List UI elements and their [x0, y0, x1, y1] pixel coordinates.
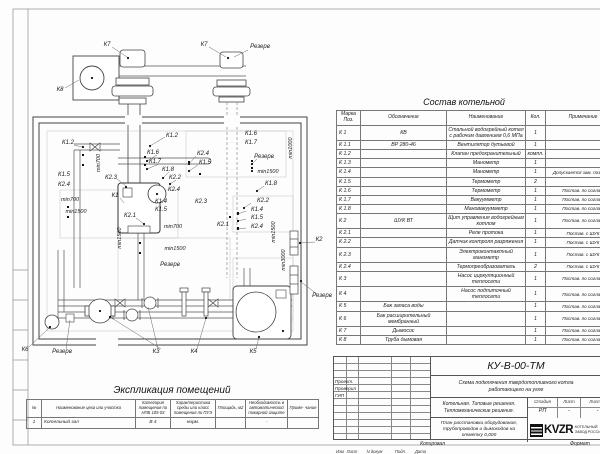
format-label: Формат — [570, 441, 600, 447]
callout-label: min700 — [96, 153, 102, 172]
inline-pumps — [124, 297, 158, 321]
callout-label: Резерв — [254, 154, 274, 160]
table-cell: Манометр — [447, 168, 526, 177]
table-cell: 1 — [526, 335, 546, 344]
callout-label: К1.5 — [251, 215, 264, 221]
table-cell — [361, 247, 447, 262]
table-cell: 1 — [526, 326, 546, 335]
callout-label: К6 — [22, 347, 30, 353]
table-cell — [288, 417, 319, 428]
role-label: Проект. — [335, 379, 375, 384]
table-cell: К 1.7 — [337, 195, 361, 204]
table-cell — [361, 238, 447, 247]
table-cell: К 1.8 — [337, 204, 361, 213]
table-cell: Вакуумметр — [447, 195, 526, 204]
sheet-description: План расстановки оборудования, трубопров… — [431, 418, 528, 442]
callout-label: К1 — [112, 193, 119, 199]
callout-label: К4 — [191, 349, 199, 355]
callout-label: К2.4 — [168, 187, 181, 193]
callout-label: К2.1 — [124, 213, 136, 219]
table-cell: Постав. по соглас. — [546, 335, 600, 344]
table-cell: Постав. с ШУК — [546, 229, 600, 238]
table-cell — [361, 262, 447, 271]
callout-label: К1.8 — [162, 167, 175, 173]
callout-label: Резерв — [312, 293, 332, 299]
table-row: К 2.4Термопреобразователь2Постав. с ШУК — [337, 262, 600, 271]
callout-label: К1.4 — [251, 207, 264, 213]
table-row: К 2.3Электроконтактный манометр1Постав. … — [337, 247, 600, 262]
table-cell: 1 — [526, 186, 546, 195]
callout-label: К2.2 — [169, 175, 182, 181]
callout-label: min700 — [61, 197, 80, 203]
callout-label: К2.3 — [105, 175, 118, 181]
title-block-revision-grid: Изм Лист N докум Подп. Дата Проект. Пров… — [334, 357, 431, 439]
column-header: Марка Поз. — [337, 111, 361, 126]
callout-label: К1.6 — [147, 150, 160, 156]
table-cell: 1 — [526, 287, 546, 302]
column-header: Наименование — [447, 111, 526, 126]
table-cell: К 5 — [337, 302, 361, 311]
table-cell — [361, 159, 447, 168]
table-cell: 1 — [526, 141, 546, 150]
table-cell: К 2 — [337, 214, 361, 229]
callout-label: К2 — [316, 237, 324, 243]
control-panel-k2 — [290, 231, 298, 255]
project-name: Котельная. Типовые решения. Тепломеханич… — [431, 398, 528, 418]
title-block: Изм Лист N докум Подп. Дата Проект. Пров… — [333, 356, 600, 440]
table-row: К 1.3Манометр1 — [337, 159, 600, 168]
table-cell: Щит управления водогрейным котлом — [447, 214, 526, 229]
table-row: К 5Бак запаса воды1Постав. по соглас. — [337, 302, 600, 311]
table-cell: Постав. по соглас. — [546, 186, 600, 195]
callout-label: min1500 — [117, 227, 123, 249]
explication-section: Экспликация помещений № Наименование цех… — [26, 385, 326, 429]
table-cell: К 2.3 — [337, 247, 361, 262]
table-cell — [361, 168, 447, 177]
table-cell: Насос подпиточный теплосети — [447, 287, 526, 302]
callout-label: К2.4 — [58, 182, 71, 188]
spec-header-row: Марка Поз. Обозначение Наименование Кол.… — [337, 111, 600, 126]
callout-label: min1000 — [288, 137, 294, 159]
column-header: Площадь, м2 — [216, 400, 246, 418]
explication-title: Экспликация помещений — [26, 385, 318, 396]
table-cell: 1 — [526, 302, 546, 311]
table-cell: Вентилятор дутьевой — [447, 141, 526, 150]
table-cell: Манометр — [447, 159, 526, 168]
table-cell: К 1.3 — [337, 159, 361, 168]
table-row: К 1.1ВР 280-46Вентилятор дутьевой1 — [337, 141, 600, 150]
table-cell: Постав. по соглас. — [546, 287, 600, 302]
table-cell: Термометр — [447, 186, 526, 195]
callout-label: К5 — [250, 349, 258, 355]
table-cell — [361, 271, 447, 286]
table-row: К 1.7Вакуумметр1Постав. по соглас. — [337, 195, 600, 204]
table-cell: 1 — [526, 229, 546, 238]
table-cell: Постав. по соглас. — [546, 326, 600, 335]
column-header: Необходимость в автоматической пожарной … — [246, 400, 288, 418]
sheets-label: Листов — [581, 399, 600, 404]
table-cell: К 3 — [337, 271, 361, 286]
table-row: К 4Насос подпиточный теплосети1Постав. п… — [337, 287, 600, 302]
table-cell — [546, 177, 600, 186]
table-cell: 1 — [526, 168, 546, 177]
table-row: К 2.1Реле протока1Постав. с ШУК — [337, 229, 600, 238]
table-cell: Датчик контроля разряжения — [447, 238, 526, 247]
table-cell: 1 — [526, 271, 546, 286]
table-cell: К 1 — [337, 125, 361, 140]
callout-label: К1.8 — [265, 181, 278, 187]
kvzr-logo-text: KVZR — [544, 424, 573, 436]
table-cell: Постав. по соглас. — [546, 271, 600, 286]
table-cell: Стальной водогрейный котел с рабочим дав… — [447, 125, 526, 140]
callout-label: Резерв — [250, 44, 270, 50]
table-cell: К 2.2 — [337, 238, 361, 247]
table-cell: КВ — [361, 125, 447, 140]
table-cell: 2 — [526, 262, 546, 271]
callout-label: К1.4 — [155, 199, 168, 205]
column-header: Кол. — [526, 111, 546, 126]
table-cell — [546, 125, 600, 140]
table-cell — [546, 159, 600, 168]
table-row: 1Котельный залВ 4норм.- — [27, 417, 319, 428]
document-subtitle: Схема подключения твердотопливного котла… — [431, 375, 600, 397]
column-header: Обозначение — [361, 111, 447, 126]
role-label: ГИП — [335, 393, 375, 398]
callout-label: Резерв — [160, 262, 180, 268]
table-cell — [361, 177, 447, 186]
table-cell — [546, 150, 600, 159]
callout-label: К1.2 — [166, 133, 179, 139]
callout-label: min1500 — [164, 246, 186, 252]
table-cell: Постав. по соглас. — [546, 204, 600, 213]
kvzr-logo-subtext: КОТЕЛЬНЫЙ ЗАВОД РОССИИ — [575, 425, 600, 434]
table-cell: Бак расширительный мембранный — [361, 311, 447, 326]
table-cell: Электроконтактный манометр — [447, 247, 526, 262]
copied-label: Копировал — [405, 441, 460, 447]
callout-label: К1.6 — [245, 131, 258, 137]
table-cell — [447, 335, 526, 344]
table-cell: - — [246, 417, 288, 428]
table-cell: Термопреобразователь — [447, 262, 526, 271]
reserve-panel — [290, 266, 298, 294]
table-cell — [546, 141, 600, 150]
table-cell: 1 — [526, 238, 546, 247]
table-cell — [216, 417, 246, 428]
table-cell: компл. — [526, 150, 546, 159]
table-cell: Труба дымовая — [361, 335, 447, 344]
column-header: Приме- чание — [288, 400, 319, 418]
callout-label: К1.2 — [62, 140, 75, 146]
spec-table-section: Состав котельной Марка Поз. Обозначение … — [336, 97, 600, 345]
callout-label: К3 — [153, 349, 161, 355]
table-cell: Постав. с ШУК — [546, 262, 600, 271]
table-cell — [447, 326, 526, 335]
table-cell: Насос циркуляционный теплосети — [447, 271, 526, 286]
table-cell: К 1.1 — [337, 141, 361, 150]
table-cell: К 4 — [337, 287, 361, 302]
table-cell: ВР 280-46 — [361, 141, 447, 150]
table-cell: 1 — [526, 204, 546, 213]
table-row: К 3Насос циркуляционный теплосети1Постав… — [337, 271, 600, 286]
explication-table: № Наименование цеха или участка Категори… — [26, 399, 319, 429]
table-row: К 2ШУК ВТЩит управления водогрейным котл… — [337, 214, 600, 229]
table-cell: Постав. по соглас. — [546, 311, 600, 326]
sheets-value: - — [581, 408, 600, 414]
table-cell: К 2.1 — [337, 229, 361, 238]
callout-label: К1.7 — [245, 140, 258, 146]
column-header: Категория помещения по НПБ 105-03 — [136, 400, 171, 418]
table-cell: К 1.5 — [337, 177, 361, 186]
table-cell: 1 — [526, 247, 546, 262]
callout-label: К2.4 — [251, 224, 264, 230]
table-row: К 2.2Датчик контроля разряжения1Постав. … — [337, 238, 600, 247]
stage-value: РП — [528, 408, 557, 414]
table-cell: Бак запаса воды — [361, 302, 447, 311]
callout-label: К2.2 — [257, 198, 270, 204]
role-label: Проверил — [335, 386, 375, 391]
callout-label: К1.7 — [149, 159, 162, 165]
callout-label: Резерв — [52, 349, 72, 355]
table-cell: Постав. с ШУК — [546, 238, 600, 247]
table-cell: К 8 — [337, 335, 361, 344]
callout-label: К1.5 — [199, 160, 212, 166]
table-cell: К 1.2 — [337, 150, 361, 159]
table-cell: В 4 — [136, 417, 171, 428]
table-cell: К 2.4 — [337, 262, 361, 271]
callout-label: min1500 — [65, 209, 87, 215]
document-code: КУ-В-00-ТМ — [431, 357, 600, 375]
callout-label: min700 — [164, 224, 183, 230]
callout-label: К2.4 — [197, 151, 210, 157]
table-cell — [361, 195, 447, 204]
table-row: К 7Дымосос1Постав. по соглас. — [337, 326, 600, 335]
table-row: К 1.2Клапан предохранительныйкомпл. — [337, 150, 600, 159]
table-cell: Постав. по соглас. — [546, 195, 600, 204]
table-row: К 1.8Мановакуумметр1Постав. по соглас. — [337, 204, 600, 213]
stage-label: Стадия — [528, 399, 557, 404]
callout-label: К1.5 — [58, 172, 71, 178]
table-cell — [361, 229, 447, 238]
table-cell: 1 — [526, 125, 546, 140]
table-cell: 1 — [27, 417, 42, 428]
table-cell: Постав. по соглас. — [546, 214, 600, 229]
company-logo: KVZR КОТЕЛЬНЫЙ ЗАВОД РОССИИ — [530, 420, 600, 440]
table-row: К 1КВСтальной водогрейный котел с рабочи… — [337, 125, 600, 140]
table-cell — [447, 311, 526, 326]
table-row: К 1.5Термометр2 — [337, 177, 600, 186]
title-block-main: КУ-В-00-ТМ Схема подключения твердотопли… — [431, 357, 600, 439]
table-cell: Клапан предохранительный — [447, 150, 526, 159]
explication-header-row: № Наименование цеха или участка Категори… — [27, 400, 319, 418]
callout-label: К2.3 — [195, 199, 208, 205]
table-cell: Термометр — [447, 177, 526, 186]
table-cell: Допускается зам. поз. К 2.3 — [546, 168, 600, 177]
table-cell: Мановакуумметр — [447, 204, 526, 213]
spec-table: Марка Поз. Обозначение Наименование Кол.… — [336, 110, 600, 345]
table-cell: 2 — [526, 177, 546, 186]
callout-label: К7 — [201, 42, 209, 48]
table-cell — [361, 150, 447, 159]
table-cell: К 1.4 — [337, 168, 361, 177]
column-header: Примечание — [546, 111, 600, 126]
callout-label: К2.1 — [217, 222, 229, 228]
callout-label: min3000 — [281, 249, 287, 271]
table-cell — [361, 287, 447, 302]
table-row: К 1.4Манометр1Допускается зам. поз. К 2.… — [337, 168, 600, 177]
table-cell: Дымосос — [361, 326, 447, 335]
table-cell: норм. — [171, 417, 216, 428]
sheet-label: Лист — [558, 399, 580, 404]
spec-table-title: Состав котельной — [336, 97, 592, 107]
table-cell: 1 — [526, 195, 546, 204]
table-cell: К 7 — [337, 326, 361, 335]
table-cell: Реле протока — [447, 229, 526, 238]
table-cell: Постав. по соглас. — [546, 302, 600, 311]
callout-label: К8 — [57, 87, 65, 93]
table-row: К 1.6Термометр1Постав. по соглас. — [337, 186, 600, 195]
table-cell: Постав. с ШУК — [546, 247, 600, 262]
kvzr-logo-icon — [530, 424, 543, 437]
table-cell: К 6 — [337, 311, 361, 326]
table-cell: Котельный зал — [42, 417, 136, 428]
table-row: К 6Бак расширительный мембранный1Постав.… — [337, 311, 600, 326]
column-header: Наименование цеха или участка — [42, 400, 136, 418]
column-header: Характеристика среды или класс помещения… — [171, 400, 216, 418]
table-cell — [447, 302, 526, 311]
callout-label: min1500 — [271, 221, 277, 243]
smoke-exhauster-k7-reserve — [213, 52, 250, 278]
table-cell — [361, 186, 447, 195]
table-cell: К 1.6 — [337, 186, 361, 195]
table-cell: 1 — [526, 311, 546, 326]
drawing-sheet: { "drawing": { "labels": ["К7","К7","Рез… — [0, 0, 600, 450]
table-cell: 1 — [526, 214, 546, 229]
table-row: К 8Труба дымовая1Постав. по соглас. — [337, 335, 600, 344]
column-header: № — [27, 400, 42, 418]
sheet-value: - — [558, 408, 580, 414]
table-cell — [361, 204, 447, 213]
callout-label: К7 — [104, 42, 112, 48]
callout-label: К1.5 — [155, 207, 168, 213]
table-cell: ШУК ВТ — [361, 214, 447, 229]
table-cell: 1 — [526, 159, 546, 168]
callout-label: min1500 — [257, 169, 279, 175]
